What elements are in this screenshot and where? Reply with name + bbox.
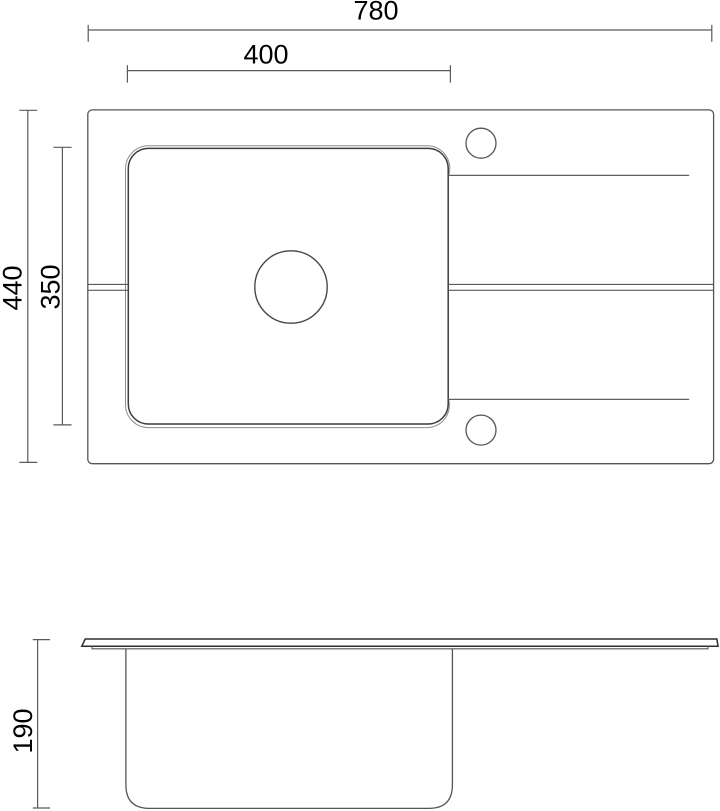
svg-text:440: 440 [0,265,27,310]
svg-text:190: 190 [8,708,38,753]
svg-text:780: 780 [353,0,398,26]
svg-text:350: 350 [35,264,65,309]
svg-text:400: 400 [243,39,288,69]
